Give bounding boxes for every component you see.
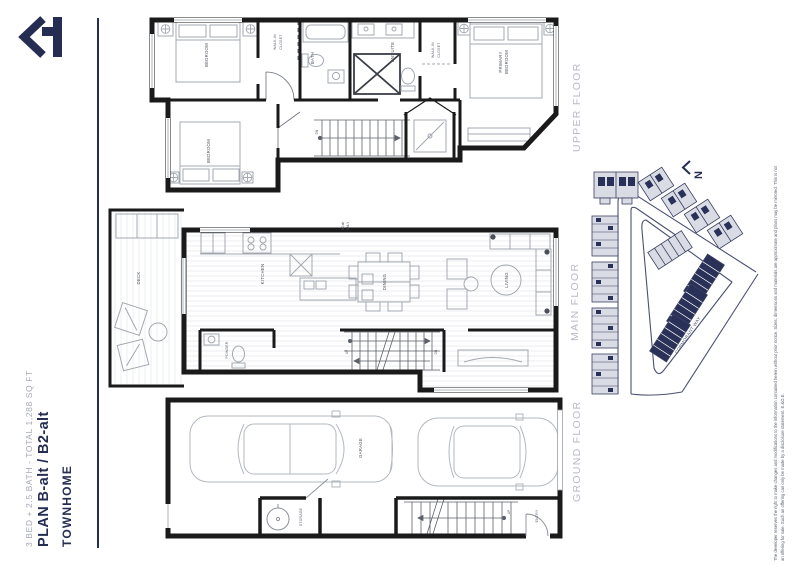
brochure-page: TOWNHOME PLAN B-alt / B2-alt 3 BED + 2.5…: [0, 0, 793, 565]
logo-bar-icon: [53, 17, 62, 57]
site-map: N CORMORANT WAY: [584, 148, 762, 400]
stair-label-up-main: UP: [345, 350, 349, 354]
highlighted-buildings: [650, 254, 725, 362]
room-label-dining: DINING: [382, 273, 387, 290]
plan-title: PLAN B-alt / B2-alt: [36, 411, 52, 547]
variant-note-2: ONLY: [346, 221, 350, 230]
variant-note-1: B2-alt: [341, 222, 345, 230]
room-label-garage: GARAGE: [358, 438, 363, 458]
brand-title: TOWNHOME: [60, 465, 74, 547]
disclaimer-line-2: an offering for sale. Such an offering c…: [779, 166, 786, 561]
room-label-bath: BATH: [310, 52, 315, 64]
room-label-wic-top-2: CLOSET: [279, 34, 283, 50]
room-label-wic2-1: WALK-IN: [431, 42, 435, 58]
room-label-storage: STORAGE: [299, 507, 303, 526]
room-label-wic2-2: CLOSET: [437, 42, 441, 58]
upper-floor-plan: BEDROOM BEDROOM BATH ENSUITE WALK-IN CLO…: [118, 8, 564, 200]
stair-label-dn-main: DN: [434, 349, 438, 354]
room-label-bedroom1: BEDROOM: [204, 43, 209, 67]
site-buildings: [592, 167, 743, 394]
car-2: [418, 414, 560, 490]
room-label-wic-top-1: WALK-IN: [273, 34, 277, 50]
room-label-ensuite: ENSUITE: [390, 42, 395, 62]
disclaimer-line-1: The developer reserves the right to make…: [772, 166, 779, 561]
ground-stairs: [404, 499, 518, 537]
stair-label-dn-upper: DN: [315, 129, 319, 134]
room-label-bedroom2: BEDROOM: [206, 139, 211, 163]
main-floor-plan: B2-alt ONLY DECK KITCHEN DINING LIVING P…: [104, 202, 574, 394]
room-label-kitchen: KITCHEN: [260, 264, 265, 285]
disclaimer: The developer reserves the right to make…: [772, 166, 786, 561]
room-label-entry: ENTRY: [535, 509, 539, 522]
room-label-deck: DECK: [136, 272, 141, 285]
ground-floor-plan: GARAGE STORAGE ENTRY UP: [150, 386, 574, 562]
stair-label-up-ground: UP: [507, 510, 511, 514]
north-arrow-icon: N: [683, 161, 705, 179]
upper-walls: [152, 20, 556, 190]
upper-stairs: [314, 120, 410, 156]
upper-floor-label: UPPER FLOOR: [571, 62, 583, 152]
room-label-primary-2: BEDROOM: [504, 50, 509, 74]
vertical-divider: [97, 18, 99, 548]
room-label-primary-1: PRIMARY: [498, 51, 503, 72]
ground-walls: [168, 400, 560, 536]
room-label-living: LIVING: [504, 272, 509, 288]
washer-dryer-closet: [404, 98, 456, 160]
north-label: N: [693, 171, 705, 179]
logo-nub-icon: [42, 27, 53, 36]
brand-logo: [16, 14, 68, 60]
plan-specs: 3 BED + 2.5 BATH - TOTAL 1,288 SQ FT: [24, 370, 34, 547]
logo-chevron-icon: [24, 19, 43, 55]
room-label-powder: POWDER: [225, 341, 229, 358]
